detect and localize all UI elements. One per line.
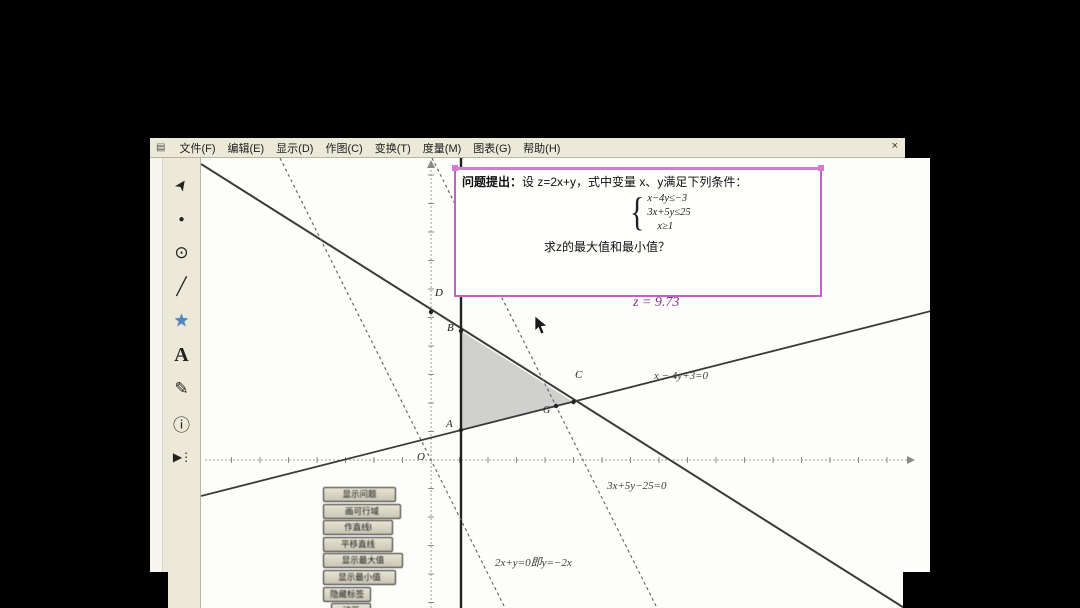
compass-circle-tool[interactable]: ⊙ [167,236,197,270]
letterbox-top-right [905,138,935,158]
action-button-draw-region[interactable]: 画可行域 [323,504,401,519]
straightedge-tool[interactable]: ╱ [167,270,197,304]
letterbox-bottom-right [903,572,935,608]
line-x-minus-4y-plus-3[interactable] [201,311,930,496]
label-objective-line: 2x+y=0即y=−2x [495,554,572,570]
label-point-D: D [435,287,443,299]
action-button-show-max[interactable]: 显示最大值 [323,553,403,568]
selection-arrow-icon: ➤ [171,175,193,196]
problem-statement: 问题提出：设 z=2x+y，式中变量 x、y满足下列条件： [462,173,814,190]
video-frame: ▤ 文件(F) 编辑(E) 显示(D) 作图(C) 变换(T) 度量(M) 图表… [0,0,1080,608]
problem-text-box[interactable]: 问题提出：设 z=2x+y，式中变量 x、y满足下列条件： { x−4y≤−3 … [454,167,822,297]
action-button-animate[interactable]: 动画 [331,603,371,608]
point-A[interactable] [459,428,463,432]
problem-question: 求z的最大值和最小值？ [544,238,814,255]
app-icon: ▤ [156,142,165,153]
window-edge-strip [150,158,163,608]
marker-tool[interactable]: ✎ [167,372,197,406]
menu-help[interactable]: 帮助(H) [523,140,560,156]
menu-edit[interactable]: 编辑(E) [228,140,265,156]
polygon-tool[interactable]: ★ [167,304,197,338]
label-point-A: A [446,418,453,430]
action-button-translate-line[interactable]: 平移直线 [323,537,393,552]
menu-bar: ▤ 文件(F) 编辑(E) 显示(D) 作图(C) 变换(T) 度量(M) 图表… [150,138,930,158]
custom-tool[interactable]: ▶⋮ [167,440,197,474]
action-button-show-min[interactable]: 显示最小值 [323,570,396,585]
menu-file[interactable]: 文件(F) [179,140,215,156]
menu-display[interactable]: 显示(D) [276,140,313,156]
selection-handle-icon[interactable] [818,165,824,171]
point-G[interactable] [554,404,558,408]
action-button-draw-line[interactable]: 作直线l [323,520,393,535]
action-button-hide-labels[interactable]: 隐藏标签 [323,587,371,602]
problem-title: 问题提出： [462,175,522,189]
action-button-stack: 显示问题 画可行域 作直线l 平移直线 显示最大值 显示最小值 隐藏标签 动画 [323,487,433,608]
selection-arrow-tool[interactable]: ➤ [167,168,197,202]
label-point-G: G [543,405,550,416]
point-D[interactable] [429,310,433,314]
selection-handle-icon[interactable] [452,165,458,171]
menu-construct[interactable]: 作图(C) [325,140,362,156]
label-line-x-4y-3: x − 4y+3=0 [654,370,708,382]
letterbox-bottom-left [150,572,168,608]
constraint-2: 3x+5y≤25 [647,206,690,220]
label-point-O: O [417,451,425,463]
action-button-show-problem[interactable]: 显示问题 [323,487,396,502]
information-tool[interactable]: ⓘ [167,406,197,440]
tool-palette: ➤ ● ⊙ ╱ ★ A ✎ ⓘ ▶⋮ [163,158,201,608]
text-tool[interactable]: A [167,338,197,372]
label-line-3x-5y-25: 3x+5y−25=0 [607,480,667,492]
point-B[interactable] [459,329,463,333]
sketch-canvas[interactable]: O A B C G D x=1 x − 4y+3=0 3x+5y−25=0 2x… [201,158,930,608]
constraint-1: x−4y≤−3 [647,192,690,206]
point-C[interactable] [571,400,575,404]
y-axis-arrow-icon [427,160,435,168]
point-tool[interactable]: ● [167,202,197,236]
menu-transform[interactable]: 变换(T) [375,140,411,156]
x-axis-arrow-icon [907,456,915,464]
label-point-B: B [447,322,454,334]
mouse-cursor-icon [535,316,547,334]
close-icon[interactable]: × [892,140,898,152]
menu-graph[interactable]: 图表(G) [473,140,511,156]
constraint-3: x≥1 [647,220,690,234]
problem-intro: 设 z=2x+y，式中变量 x、y满足下列条件： [522,175,747,189]
constraint-system: { x−4y≤−3 3x+5y≤25 x≥1 [630,192,814,234]
menu-measure[interactable]: 度量(M) [423,140,462,156]
brace-icon: { [630,190,644,236]
label-point-C: C [575,369,582,381]
label-z-value: z = 9.73 [633,295,679,311]
sketchpad-window: ▤ 文件(F) 编辑(E) 显示(D) 作图(C) 变换(T) 度量(M) 图表… [150,138,930,608]
